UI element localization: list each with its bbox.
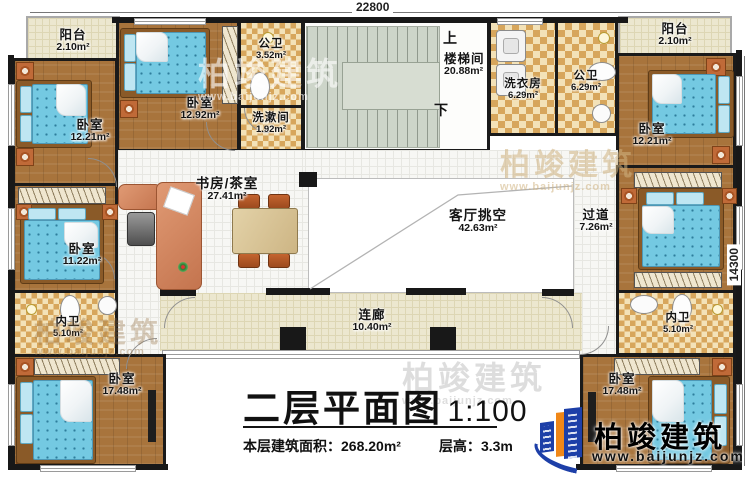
column-corridor-2	[430, 327, 456, 350]
bed-blanket	[652, 74, 682, 104]
tea-table	[232, 208, 298, 254]
room-label-laundry: 洗衣房 6.29m²	[490, 78, 556, 102]
floor-area-text: 本层建筑面积：268.20m²	[243, 436, 401, 456]
corridor-railing	[162, 350, 580, 359]
nightstand	[102, 204, 118, 220]
room-label-stairwell: 楼梯间 20.88m²	[444, 52, 536, 78]
stairs-landing	[342, 62, 440, 110]
window	[8, 384, 15, 446]
plan-scale: 1:100	[447, 395, 527, 428]
title-underline	[243, 426, 497, 428]
floor-height-text: 层高：3.3m	[439, 436, 513, 456]
window	[736, 384, 743, 446]
desk-chair	[127, 212, 155, 246]
column-void-corner	[299, 172, 317, 187]
bed-pillow	[714, 384, 727, 414]
room-label-bedroom-tl: 卧室 12.21m²	[52, 118, 128, 144]
bed-pillow	[718, 76, 730, 104]
nightstand	[722, 188, 737, 204]
tv	[148, 390, 156, 442]
window	[8, 208, 15, 270]
nightstand	[712, 146, 730, 164]
room-label-bath-mr: 内卫 5.10m²	[648, 312, 708, 336]
bed-pillow	[20, 382, 33, 412]
window	[616, 465, 712, 472]
window	[497, 18, 543, 25]
dimension-line-right	[744, 56, 745, 466]
room-label-bedroom-ml: 卧室 11.22m²	[42, 242, 122, 268]
nightstand	[120, 100, 138, 118]
nightstand	[621, 188, 637, 204]
sink	[592, 104, 611, 123]
tea-chair	[238, 253, 260, 268]
room-label-bath-top: 公卫 3.52m²	[240, 38, 302, 62]
bed-pillow	[20, 414, 33, 444]
bed-pillow	[676, 192, 704, 205]
bed-blanket	[56, 84, 86, 116]
column-corridor-1	[280, 327, 306, 350]
bed-blanket	[136, 32, 168, 62]
room-label-bedroom-tr: 卧室 12.21m²	[612, 122, 692, 148]
bed-pillow	[58, 208, 86, 220]
window	[40, 465, 136, 472]
window	[134, 18, 206, 25]
wall-lamp	[712, 304, 723, 315]
window	[736, 76, 743, 146]
baijun-logo-url: www.baijunjz.com	[592, 448, 745, 464]
nightstand	[16, 148, 34, 166]
room-label-study: 书房/茶室 27.41m²	[184, 176, 270, 203]
bed-pillow	[124, 63, 136, 91]
nightstand	[16, 358, 34, 376]
stairs-up-label: 上	[443, 28, 457, 48]
void-diagonal-line	[308, 178, 574, 293]
room-label-corridor: 连廊 10.40m²	[340, 308, 404, 334]
tea-chair	[268, 253, 290, 268]
bed-pillow	[28, 208, 56, 220]
nightstand	[16, 62, 34, 80]
wardrobe	[634, 272, 722, 288]
dimension-width: 22800	[352, 0, 393, 14]
title-block: 二层平面图 1:100	[243, 378, 528, 432]
window	[8, 84, 15, 146]
wall-lamp	[26, 304, 37, 315]
room-label-bath-ml: 内卫 5.10m²	[38, 316, 98, 340]
plant	[178, 262, 188, 272]
bed-pillow	[124, 34, 136, 62]
room-label-bedroom-br: 卧室 17.48m²	[582, 372, 662, 398]
room-label-bedroom-t2: 卧室 12.92m²	[160, 96, 240, 122]
room-label-bath-tr: 公卫 6.29m²	[556, 70, 616, 94]
bed-blanket	[642, 206, 674, 234]
floor-plan: 上 下	[0, 0, 750, 482]
sink	[98, 296, 117, 315]
tea-chair	[268, 194, 290, 209]
bed-pillow	[718, 105, 730, 133]
room-label-washroom: 洗漱间 1.92m²	[238, 112, 304, 136]
room-label-balcony-tr: 阳台 2.10m²	[630, 22, 720, 48]
wardrobe	[634, 172, 722, 188]
baijun-logo-icon	[534, 408, 592, 468]
bed-pillow	[646, 192, 674, 205]
room-label-living-void: 客厅挑空 42.63m²	[430, 208, 526, 235]
plan-title: 二层平面图	[243, 388, 443, 429]
wardrobe	[18, 187, 106, 204]
open-walkway-strip	[305, 150, 618, 178]
wall-lamp	[598, 32, 610, 44]
stairs-down-label: 下	[434, 100, 448, 120]
title-subline: 本层建筑面积：268.20m² 层高：3.3m	[243, 436, 513, 456]
wall-corridor-seg-1	[160, 289, 196, 296]
toilet	[250, 72, 270, 100]
room-label-balcony-tl: 阳台 2.10m²	[28, 28, 118, 54]
dimension-height: 14300	[727, 244, 741, 285]
wardrobe	[222, 26, 238, 104]
bed-pillow	[20, 86, 32, 113]
bed-pillow	[20, 115, 32, 142]
nightstand	[712, 358, 732, 376]
room-label-bedroom-bl: 卧室 17.48m²	[82, 372, 162, 398]
room-label-hallway: 过道 7.26m²	[566, 208, 626, 234]
